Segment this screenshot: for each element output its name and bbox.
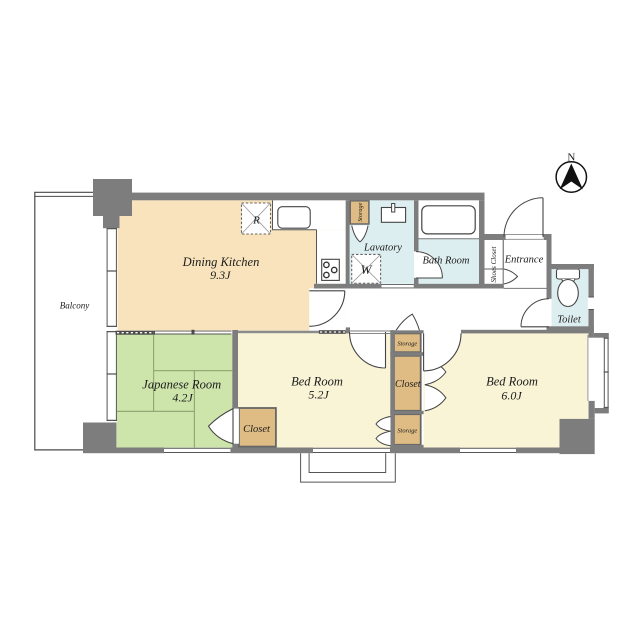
svg-text:5.2J: 5.2J: [308, 388, 329, 402]
svg-text:Storage: Storage: [397, 341, 417, 348]
svg-text:Dining Kitchen: Dining Kitchen: [182, 255, 260, 269]
svg-text:Storage: Storage: [397, 428, 417, 435]
svg-text:6.0J: 6.0J: [501, 389, 522, 403]
svg-text:Bath Room: Bath Room: [423, 255, 470, 266]
svg-text:Closet: Closet: [395, 379, 421, 390]
svg-text:W: W: [361, 262, 373, 277]
svg-text:Storage: Storage: [357, 202, 364, 222]
svg-text:9.3J: 9.3J: [210, 268, 231, 282]
svg-text:Closet: Closet: [243, 424, 271, 435]
svg-text:Toilet: Toilet: [557, 315, 582, 326]
svg-text:N: N: [567, 152, 575, 164]
svg-text:4.2J: 4.2J: [172, 390, 193, 404]
svg-text:Balcony: Balcony: [60, 301, 90, 311]
svg-text:Lavatory: Lavatory: [363, 243, 402, 254]
svg-text:Shoes Closet: Shoes Closet: [490, 245, 498, 282]
svg-text:Bed Room: Bed Room: [486, 374, 538, 388]
svg-text:Bed Room: Bed Room: [291, 375, 343, 389]
svg-text:Entrance: Entrance: [504, 254, 544, 265]
svg-text:R: R: [252, 215, 260, 227]
